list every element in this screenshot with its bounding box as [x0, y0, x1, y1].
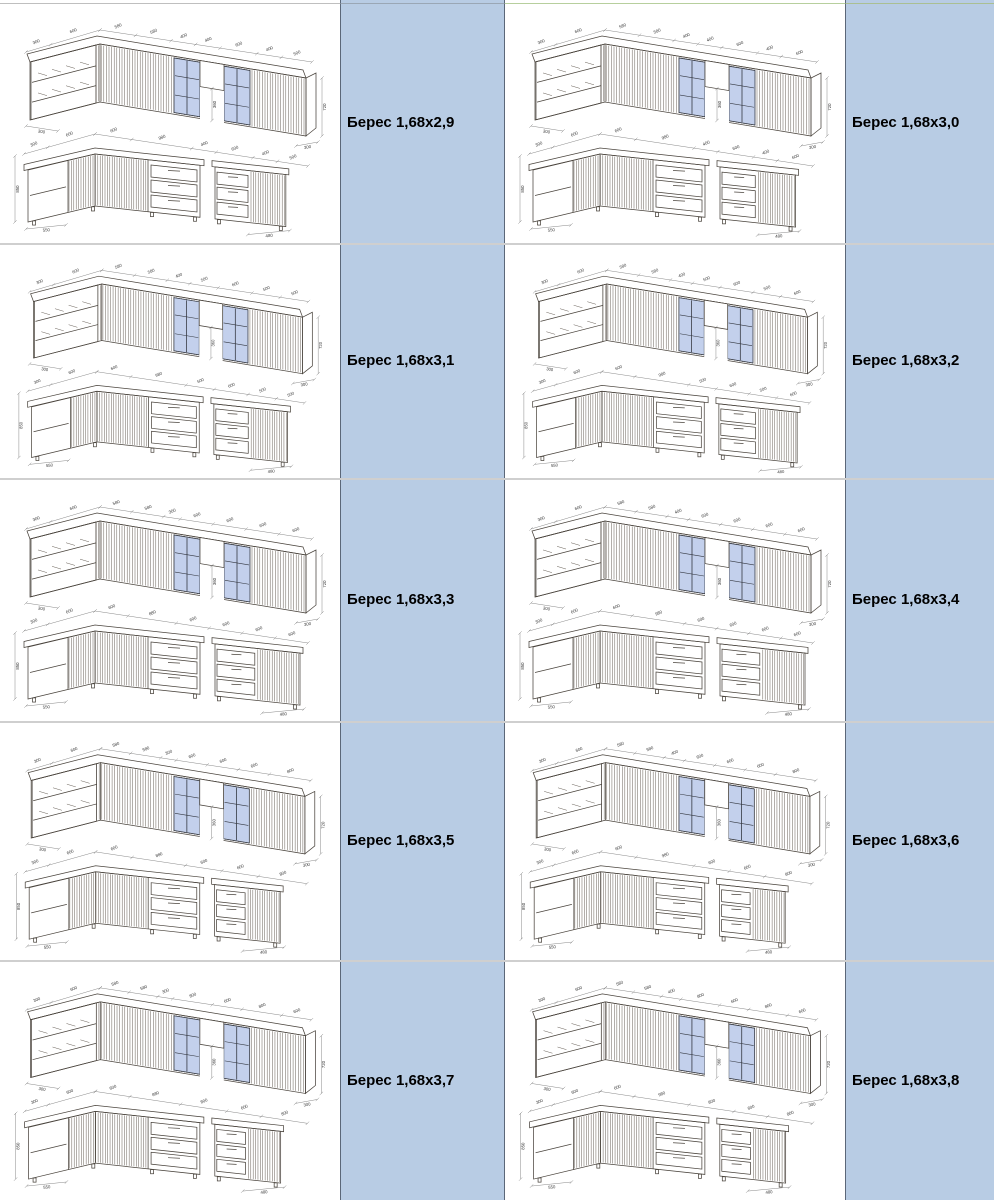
svg-text:500: 500 [293, 49, 302, 57]
svg-text:580: 580 [643, 984, 652, 992]
svg-text:300: 300 [537, 38, 546, 46]
svg-text:480: 480 [260, 949, 268, 955]
svg-text:400: 400 [761, 148, 770, 156]
svg-text:580: 580 [114, 262, 123, 270]
svg-text:550: 550 [549, 944, 557, 950]
svg-text:800: 800 [707, 1097, 716, 1105]
svg-text:600: 600 [730, 997, 739, 1005]
svg-text:360: 360 [211, 819, 216, 827]
svg-text:300: 300 [32, 515, 41, 523]
catalog-row: 3603006005805804005006005005007203003003… [0, 243, 994, 478]
svg-text:400: 400 [765, 44, 774, 52]
catalog-row: 3603006005805803006006006008007203003003… [0, 721, 994, 960]
svg-text:300: 300 [536, 858, 545, 866]
svg-text:850: 850 [524, 421, 529, 429]
model-cell[interactable]: Берес 1,68x3,5 [340, 723, 505, 960]
model-label: Берес 1,68x3,0 [846, 115, 959, 132]
svg-text:300: 300 [31, 858, 40, 866]
svg-text:360: 360 [212, 100, 217, 108]
svg-text:300: 300 [535, 140, 544, 148]
svg-text:600: 600 [574, 985, 583, 993]
svg-text:600: 600 [570, 130, 579, 138]
svg-text:300: 300 [546, 366, 554, 372]
svg-text:600: 600 [756, 761, 765, 769]
svg-text:600: 600 [791, 153, 800, 161]
svg-text:800: 800 [280, 1109, 289, 1117]
svg-text:980: 980 [654, 609, 663, 617]
svg-text:800: 800 [258, 1002, 267, 1010]
svg-text:300: 300 [540, 278, 549, 286]
svg-text:800: 800 [279, 869, 288, 877]
model-label: Берес 1,68x3,2 [846, 353, 959, 370]
svg-text:300: 300 [538, 756, 547, 764]
svg-text:500: 500 [290, 289, 299, 297]
svg-text:580: 580 [618, 22, 627, 30]
svg-text:800: 800 [286, 767, 295, 775]
drawing-cell[interactable]: 3603006005805803006006006006007203003003… [0, 480, 340, 721]
svg-text:500: 500 [258, 386, 267, 394]
model-label: Берес 1,68x3,7 [341, 1073, 454, 1090]
svg-text:500: 500 [262, 285, 271, 293]
svg-text:800: 800 [764, 1002, 773, 1010]
model-label: Берес 1,68x3,8 [846, 1073, 959, 1090]
svg-text:550: 550 [43, 1184, 51, 1190]
model-cell[interactable]: Берес 1,68x3,8 [845, 962, 994, 1200]
svg-text:720: 720 [827, 580, 832, 588]
svg-text:720: 720 [823, 341, 828, 349]
svg-text:300: 300 [535, 617, 544, 625]
svg-text:400: 400 [670, 748, 679, 756]
svg-text:600: 600 [614, 364, 623, 372]
svg-text:500: 500 [289, 153, 298, 161]
svg-text:600: 600 [614, 126, 623, 134]
model-label: Берес 1,68x3,6 [846, 833, 959, 850]
svg-text:720: 720 [318, 341, 323, 349]
svg-text:360: 360 [716, 819, 721, 827]
svg-text:980: 980 [658, 370, 667, 378]
svg-text:400: 400 [674, 507, 683, 515]
model-cell[interactable]: Берес 1,68x3,0 [845, 4, 994, 243]
svg-text:600: 600 [793, 630, 802, 638]
svg-text:360: 360 [717, 1058, 722, 1066]
drawing-cell[interactable]: 3603006005805803006006006008007203003003… [0, 723, 340, 960]
model-cell[interactable]: Берес 1,68x3,1 [340, 245, 505, 478]
catalog-rows: 3603006005805804004006004005007203003003… [0, 4, 994, 1200]
svg-text:600: 600 [747, 1103, 756, 1111]
svg-text:400: 400 [706, 35, 715, 43]
model-cell[interactable]: Берес 1,68x3,2 [845, 245, 994, 478]
svg-text:600: 600 [188, 752, 197, 760]
svg-text:600: 600 [189, 615, 198, 623]
svg-text:500: 500 [702, 275, 711, 283]
svg-text:480: 480 [268, 468, 276, 474]
svg-text:600: 600 [795, 49, 804, 57]
svg-text:480: 480 [265, 233, 273, 239]
svg-text:360: 360 [717, 577, 722, 585]
svg-text:600: 600 [66, 848, 75, 856]
svg-text:600: 600 [227, 381, 236, 389]
svg-text:850: 850 [15, 1142, 20, 1150]
svg-text:360: 360 [212, 1058, 217, 1066]
svg-text:300: 300 [304, 144, 313, 150]
svg-text:400: 400 [702, 139, 711, 147]
svg-text:550: 550 [547, 227, 555, 233]
svg-text:400: 400 [261, 149, 270, 157]
svg-text:400: 400 [667, 987, 676, 995]
svg-text:600: 600 [255, 625, 264, 633]
model-cell[interactable]: Берес 1,68x3,3 [340, 480, 505, 721]
svg-text:800: 800 [784, 869, 793, 877]
svg-text:480: 480 [777, 469, 785, 475]
svg-text:300: 300 [543, 605, 551, 611]
svg-text:600: 600 [732, 144, 741, 152]
svg-text:300: 300 [161, 987, 170, 995]
svg-text:600: 600 [729, 381, 738, 389]
svg-text:600: 600 [733, 279, 742, 287]
svg-text:600: 600 [65, 607, 74, 615]
svg-text:580: 580 [142, 745, 151, 753]
svg-text:500: 500 [200, 275, 209, 283]
svg-text:300: 300 [304, 621, 313, 627]
svg-text:580: 580 [149, 27, 158, 35]
svg-text:600: 600 [570, 607, 579, 615]
svg-text:980: 980 [661, 851, 670, 859]
svg-text:360: 360 [716, 339, 721, 347]
svg-text:600: 600 [726, 757, 735, 765]
svg-text:800: 800 [696, 992, 705, 1000]
svg-text:300: 300 [808, 1101, 817, 1107]
svg-text:480: 480 [784, 711, 792, 717]
svg-text:600: 600 [222, 620, 231, 628]
svg-text:500: 500 [698, 376, 707, 384]
svg-text:580: 580 [617, 499, 626, 507]
svg-text:600: 600 [68, 368, 77, 376]
svg-text:600: 600 [288, 630, 297, 638]
svg-text:600: 600 [231, 280, 240, 288]
svg-text:600: 600 [259, 521, 268, 529]
svg-text:720: 720 [826, 1060, 831, 1068]
svg-text:580: 580 [646, 745, 655, 753]
svg-text:580: 580 [648, 503, 657, 511]
svg-text:600: 600 [570, 1088, 579, 1096]
svg-text:300: 300 [809, 144, 818, 150]
svg-text:850: 850 [520, 662, 525, 670]
svg-text:300: 300 [543, 1086, 551, 1092]
svg-text:500: 500 [196, 377, 205, 385]
svg-text:600: 600 [765, 521, 774, 529]
model-label: Берес 1,68x3,3 [341, 592, 454, 609]
svg-text:300: 300 [303, 1101, 312, 1107]
svg-text:360: 360 [212, 577, 217, 585]
model-label: Берес 1,68x3,5 [341, 833, 454, 850]
svg-text:600: 600 [69, 985, 78, 993]
svg-text:850: 850 [15, 185, 20, 193]
svg-text:300: 300 [38, 605, 46, 611]
svg-text:850: 850 [520, 185, 525, 193]
svg-text:580: 580 [112, 499, 121, 507]
model-label: Берес 1,68x3,4 [846, 592, 959, 609]
svg-text:600: 600 [292, 526, 301, 534]
svg-text:580: 580 [653, 27, 662, 35]
svg-text:400: 400 [682, 32, 691, 40]
svg-text:600: 600 [110, 364, 119, 372]
svg-text:300: 300 [35, 278, 44, 286]
svg-text:600: 600 [226, 516, 235, 524]
svg-text:300: 300 [33, 996, 42, 1004]
svg-text:720: 720 [322, 103, 327, 111]
svg-text:300: 300 [538, 996, 547, 1004]
model-label: Берес 1,68x3,1 [341, 353, 454, 370]
svg-text:720: 720 [825, 821, 830, 829]
svg-text:720: 720 [322, 580, 327, 588]
svg-text:600: 600 [576, 267, 585, 275]
svg-text:880: 880 [151, 1090, 160, 1098]
svg-text:600: 600 [65, 1088, 74, 1096]
svg-text:600: 600 [708, 858, 717, 866]
svg-text:600: 600 [574, 504, 583, 512]
svg-text:300: 300 [537, 515, 546, 523]
svg-text:600: 600 [71, 267, 80, 275]
svg-text:850: 850 [19, 421, 24, 429]
svg-text:880: 880 [148, 609, 157, 617]
svg-text:600: 600 [110, 844, 119, 852]
svg-text:580: 580 [112, 740, 121, 748]
catalog-row: 3603006005805804004006004005007203003003… [0, 4, 994, 243]
svg-text:300: 300 [32, 38, 41, 46]
catalog-row: 3603006005805803006006006006007203003003… [0, 478, 994, 721]
svg-text:300: 300 [302, 862, 310, 868]
drawing-cell[interactable]: 3603006005805804006006006008007203003003… [505, 723, 845, 960]
svg-text:600: 600 [234, 40, 243, 48]
svg-text:300: 300 [30, 617, 39, 625]
svg-text:480: 480 [260, 1189, 268, 1195]
kitchen-drawing: 3603006005805804006006006006007203003003… [505, 480, 845, 721]
svg-text:600: 600 [69, 27, 78, 35]
svg-text:300: 300 [168, 507, 177, 515]
svg-text:800: 800 [188, 991, 197, 999]
svg-text:300: 300 [543, 128, 551, 134]
svg-text:600: 600 [69, 504, 78, 512]
svg-text:600: 600 [250, 761, 259, 769]
svg-text:500: 500 [759, 385, 768, 393]
svg-text:600: 600 [236, 863, 245, 871]
svg-text:600: 600 [613, 1083, 622, 1091]
kitchen-drawing: 3603006005805803008006008006007203003003… [0, 962, 340, 1200]
svg-text:400: 400 [179, 32, 188, 40]
svg-text:300: 300 [30, 1098, 39, 1106]
svg-text:720: 720 [320, 821, 325, 829]
svg-text:720: 720 [321, 1060, 326, 1068]
svg-text:600: 600 [109, 1083, 118, 1091]
svg-text:300: 300 [538, 378, 547, 386]
drawing-cell[interactable]: 3603006005805804008006008006007203003003… [505, 962, 845, 1200]
kitchen-drawing: 3603006005805804006006006008007203003003… [505, 723, 845, 960]
svg-text:300: 300 [805, 381, 813, 387]
svg-text:600: 600 [219, 757, 228, 765]
svg-text:600: 600 [612, 603, 621, 611]
svg-text:600: 600 [573, 368, 582, 376]
svg-text:400: 400 [204, 36, 213, 44]
svg-text:800: 800 [200, 1097, 209, 1105]
svg-text:600: 600 [223, 996, 232, 1004]
svg-text:600: 600 [200, 857, 209, 865]
svg-text:600: 600 [571, 848, 580, 856]
svg-text:850: 850 [521, 902, 526, 910]
svg-text:600: 600 [736, 40, 745, 48]
svg-text:300: 300 [809, 621, 818, 627]
model-cell[interactable]: Берес 1,68x3,4 [845, 480, 994, 721]
svg-text:580: 580 [147, 267, 156, 275]
svg-text:600: 600 [696, 752, 705, 760]
drawing-cell[interactable]: 3603006005805804004006004006007203003003… [505, 4, 845, 243]
svg-text:300: 300 [535, 1098, 544, 1106]
svg-text:580: 580 [615, 979, 624, 987]
svg-text:580: 580 [114, 22, 123, 30]
svg-text:400: 400 [200, 140, 209, 148]
svg-text:880: 880 [155, 851, 164, 859]
svg-text:600: 600 [697, 615, 706, 623]
svg-text:300: 300 [41, 366, 49, 372]
svg-text:850: 850 [520, 1142, 525, 1150]
kitchen-drawing: 3603006005805804008006008006007203003003… [505, 962, 845, 1200]
svg-text:550: 550 [42, 704, 50, 710]
svg-text:360: 360 [717, 100, 722, 108]
svg-text:600: 600 [240, 1103, 249, 1111]
drawing-cell[interactable]: 3603006005805804004006004005007203003003… [0, 4, 340, 243]
svg-text:600: 600 [614, 844, 623, 852]
svg-text:580: 580 [144, 503, 153, 511]
svg-text:400: 400 [678, 271, 687, 279]
svg-text:800: 800 [792, 767, 801, 775]
svg-text:580: 580 [616, 740, 625, 748]
kitchen-drawing: 3603006005805804004006004005007203003003… [0, 4, 340, 243]
svg-text:500: 500 [763, 284, 772, 292]
kitchen-drawing: 3603006005805803006006006008007203003003… [0, 723, 340, 960]
kitchen-drawing: 3603006005805804005006005006007203003003… [505, 245, 845, 478]
svg-text:550: 550 [44, 944, 52, 950]
svg-text:480: 480 [765, 1189, 773, 1195]
svg-text:600: 600 [574, 27, 583, 35]
svg-text:850: 850 [16, 902, 21, 910]
svg-text:550: 550 [46, 462, 54, 468]
svg-text:580: 580 [619, 262, 628, 270]
svg-text:300: 300 [39, 846, 47, 852]
model-cell[interactable]: Берес 1,68x3,7 [340, 962, 505, 1200]
svg-text:300: 300 [33, 756, 42, 764]
drawing-cell[interactable]: 3603006005805804005006005005007203003003… [0, 245, 340, 478]
svg-text:580: 580 [139, 984, 148, 992]
svg-text:720: 720 [827, 103, 832, 111]
svg-text:980: 980 [154, 370, 163, 378]
svg-text:800: 800 [786, 1109, 795, 1117]
svg-text:580: 580 [111, 979, 120, 987]
svg-text:580: 580 [651, 267, 660, 275]
svg-text:600: 600 [797, 526, 806, 534]
svg-text:300: 300 [300, 381, 308, 387]
svg-text:300: 300 [33, 378, 42, 386]
svg-text:300: 300 [30, 140, 39, 148]
svg-text:550: 550 [551, 462, 559, 468]
svg-text:400: 400 [175, 271, 184, 279]
svg-text:300: 300 [38, 128, 46, 134]
svg-text:300: 300 [38, 1086, 46, 1092]
svg-text:480: 480 [775, 233, 783, 239]
drawing-cell[interactable]: 3603006005805803008006008006007203003003… [0, 962, 340, 1200]
svg-text:550: 550 [547, 704, 555, 710]
model-cell[interactable]: Берес 1,68x2,9 [340, 4, 505, 243]
svg-text:980: 980 [158, 133, 167, 141]
kitchen-drawing: 3603006005805804005006005005007203003003… [0, 245, 340, 478]
svg-text:850: 850 [15, 662, 20, 670]
svg-text:480: 480 [279, 711, 287, 717]
svg-text:550: 550 [42, 227, 50, 233]
svg-text:600: 600 [193, 511, 202, 519]
svg-text:980: 980 [657, 1090, 666, 1098]
drawing-cell[interactable]: 3603006005805804005006005006007203003003… [505, 245, 845, 478]
svg-text:400: 400 [265, 45, 274, 53]
svg-text:600: 600 [701, 511, 710, 519]
catalog-row: 3603006005805803008006008006007203003003… [0, 960, 994, 1200]
svg-text:360: 360 [211, 339, 216, 347]
svg-text:600: 600 [70, 746, 79, 754]
svg-text:600: 600 [65, 130, 74, 138]
drawing-cell[interactable]: 3603006005805804006006006006007203003003… [505, 480, 845, 721]
svg-text:300: 300 [544, 846, 552, 852]
svg-text:600: 600 [109, 126, 118, 134]
svg-text:600: 600 [293, 1007, 302, 1015]
svg-text:600: 600 [231, 144, 240, 152]
svg-text:300: 300 [807, 862, 815, 868]
svg-text:550: 550 [548, 1184, 556, 1190]
model-cell[interactable]: Берес 1,68x3,6 [845, 723, 994, 960]
svg-text:600: 600 [107, 603, 116, 611]
svg-text:300: 300 [164, 748, 173, 756]
svg-text:600: 600 [798, 1007, 807, 1015]
svg-text:600: 600 [793, 288, 802, 296]
svg-text:600: 600 [729, 620, 738, 628]
svg-text:600: 600 [761, 625, 770, 633]
svg-text:600: 600 [743, 863, 752, 871]
kitchen-drawing: 3603006005805804004006004006007203003003… [505, 4, 845, 243]
svg-text:600: 600 [575, 746, 584, 754]
svg-text:980: 980 [661, 133, 670, 141]
svg-text:600: 600 [789, 390, 798, 398]
svg-text:600: 600 [733, 516, 742, 524]
svg-text:500: 500 [286, 390, 295, 398]
model-label: Берес 1,68x2,9 [341, 115, 454, 132]
svg-text:480: 480 [765, 949, 773, 955]
kitchen-drawing: 3603006005805803006006006006007203003003… [0, 480, 340, 721]
kitchen-catalog-sheet: 3603006005805804004006004005007203003003… [0, 0, 994, 1200]
